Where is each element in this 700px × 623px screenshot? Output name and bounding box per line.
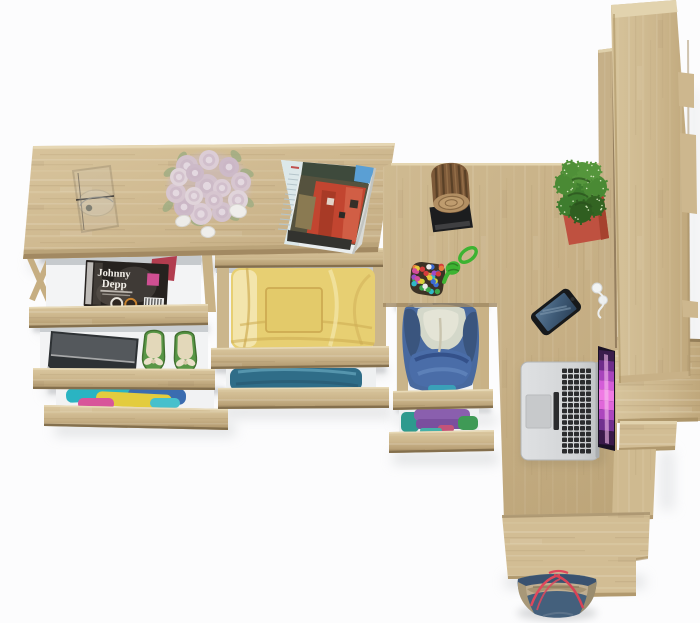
svg-text:Depp: Depp	[101, 278, 127, 291]
